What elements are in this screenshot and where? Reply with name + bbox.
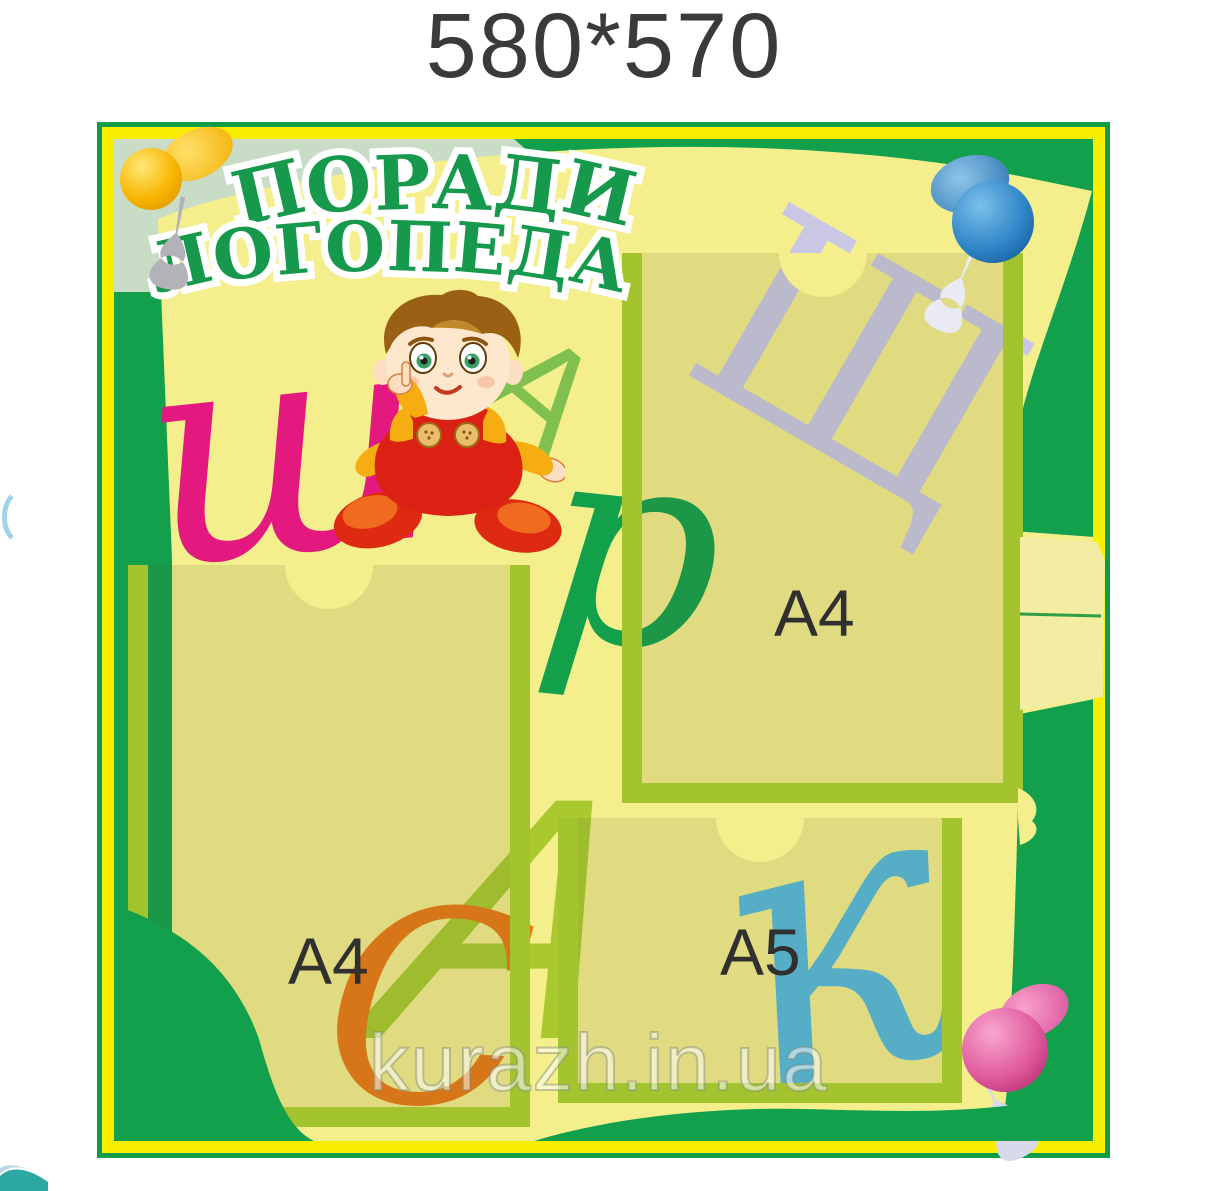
information-board: ш А Щ р А С к A4 A4 — [97, 122, 1110, 1158]
edge-brush-mark — [0, 494, 14, 540]
dimensions-label: 580*570 — [0, 0, 1208, 99]
board-background: ш А Щ р А С к A4 A4 — [114, 139, 1093, 1141]
bottom-wave — [114, 139, 1093, 1141]
product-image: 580*570 ш А Щ р А С к A4 — [0, 0, 1208, 1191]
corner-brush-mark — [0, 1160, 48, 1191]
